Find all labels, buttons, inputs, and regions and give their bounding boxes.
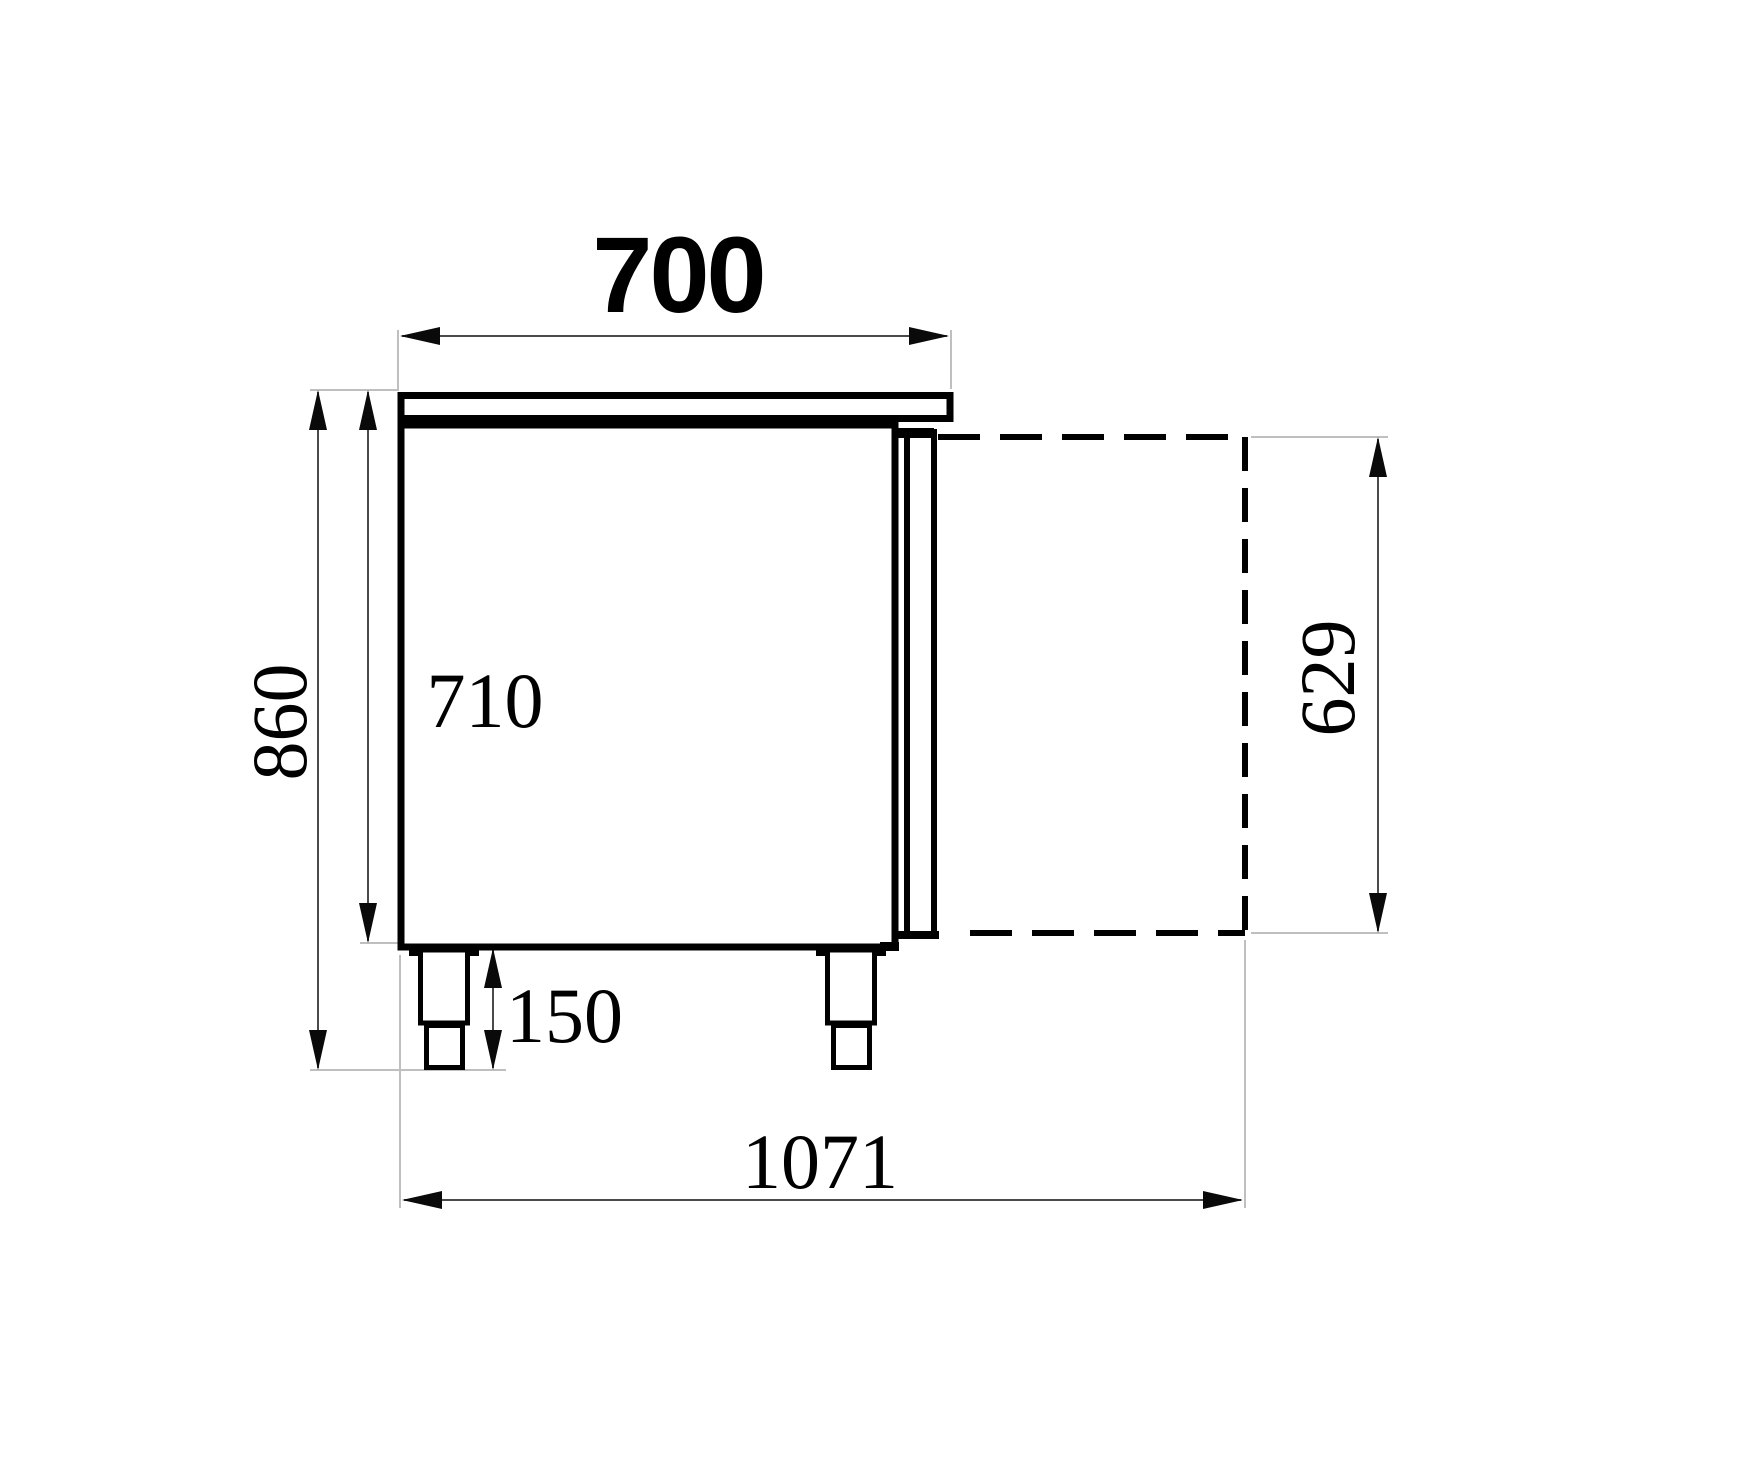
arrow-700-left-icon: [400, 327, 440, 345]
door-closed-panel: [907, 432, 934, 935]
arrow-629-top-icon: [1369, 437, 1387, 477]
arrow-150-top-icon: [484, 948, 502, 988]
arrow-860-bottom-icon: [309, 1030, 327, 1070]
arrow-150-bottom-icon: [484, 1030, 502, 1070]
arrow-1071-left-icon: [402, 1191, 442, 1209]
door-open-projection: [938, 437, 1245, 933]
dim-label-top-width: 700: [592, 214, 763, 335]
arrow-1071-right-icon: [1203, 1191, 1243, 1209]
leg-left-lower: [427, 1026, 463, 1068]
extension-lines: [310, 330, 1388, 1208]
arrow-700-right-icon: [909, 327, 949, 345]
leg-right-upper: [828, 950, 875, 1023]
arrow-629-bottom-icon: [1369, 893, 1387, 933]
technical-drawing: 700 710 860 150 1071 629: [0, 0, 1740, 1480]
drawing-canvas: 700 710 860 150 1071 629: [0, 0, 1740, 1480]
dimension-arrowheads: [309, 327, 1387, 1209]
door-top-hinge-cap: [898, 428, 934, 438]
leg-right-nub-inner: [816, 947, 827, 956]
door-bottom-cap: [898, 931, 939, 939]
dim-label-overall-depth: 1071: [742, 1118, 898, 1205]
arrow-710-bottom-icon: [359, 903, 377, 943]
dim-label-body-height: 710: [427, 657, 544, 744]
leg-left-nub-outer: [409, 947, 420, 956]
arrow-860-top-icon: [309, 390, 327, 430]
leg-right-lower: [834, 1026, 870, 1068]
leg-left-upper: [421, 950, 468, 1023]
worktop: [401, 396, 950, 419]
leg-left-nub-inner: [467, 947, 479, 956]
dim-label-leg-height: 150: [506, 972, 623, 1059]
dim-label-overall-height: 860: [236, 664, 323, 781]
dim-label-door-height: 629: [1284, 620, 1371, 737]
arrow-710-top-icon: [359, 390, 377, 430]
leg-right-nub-outer: [874, 947, 886, 956]
